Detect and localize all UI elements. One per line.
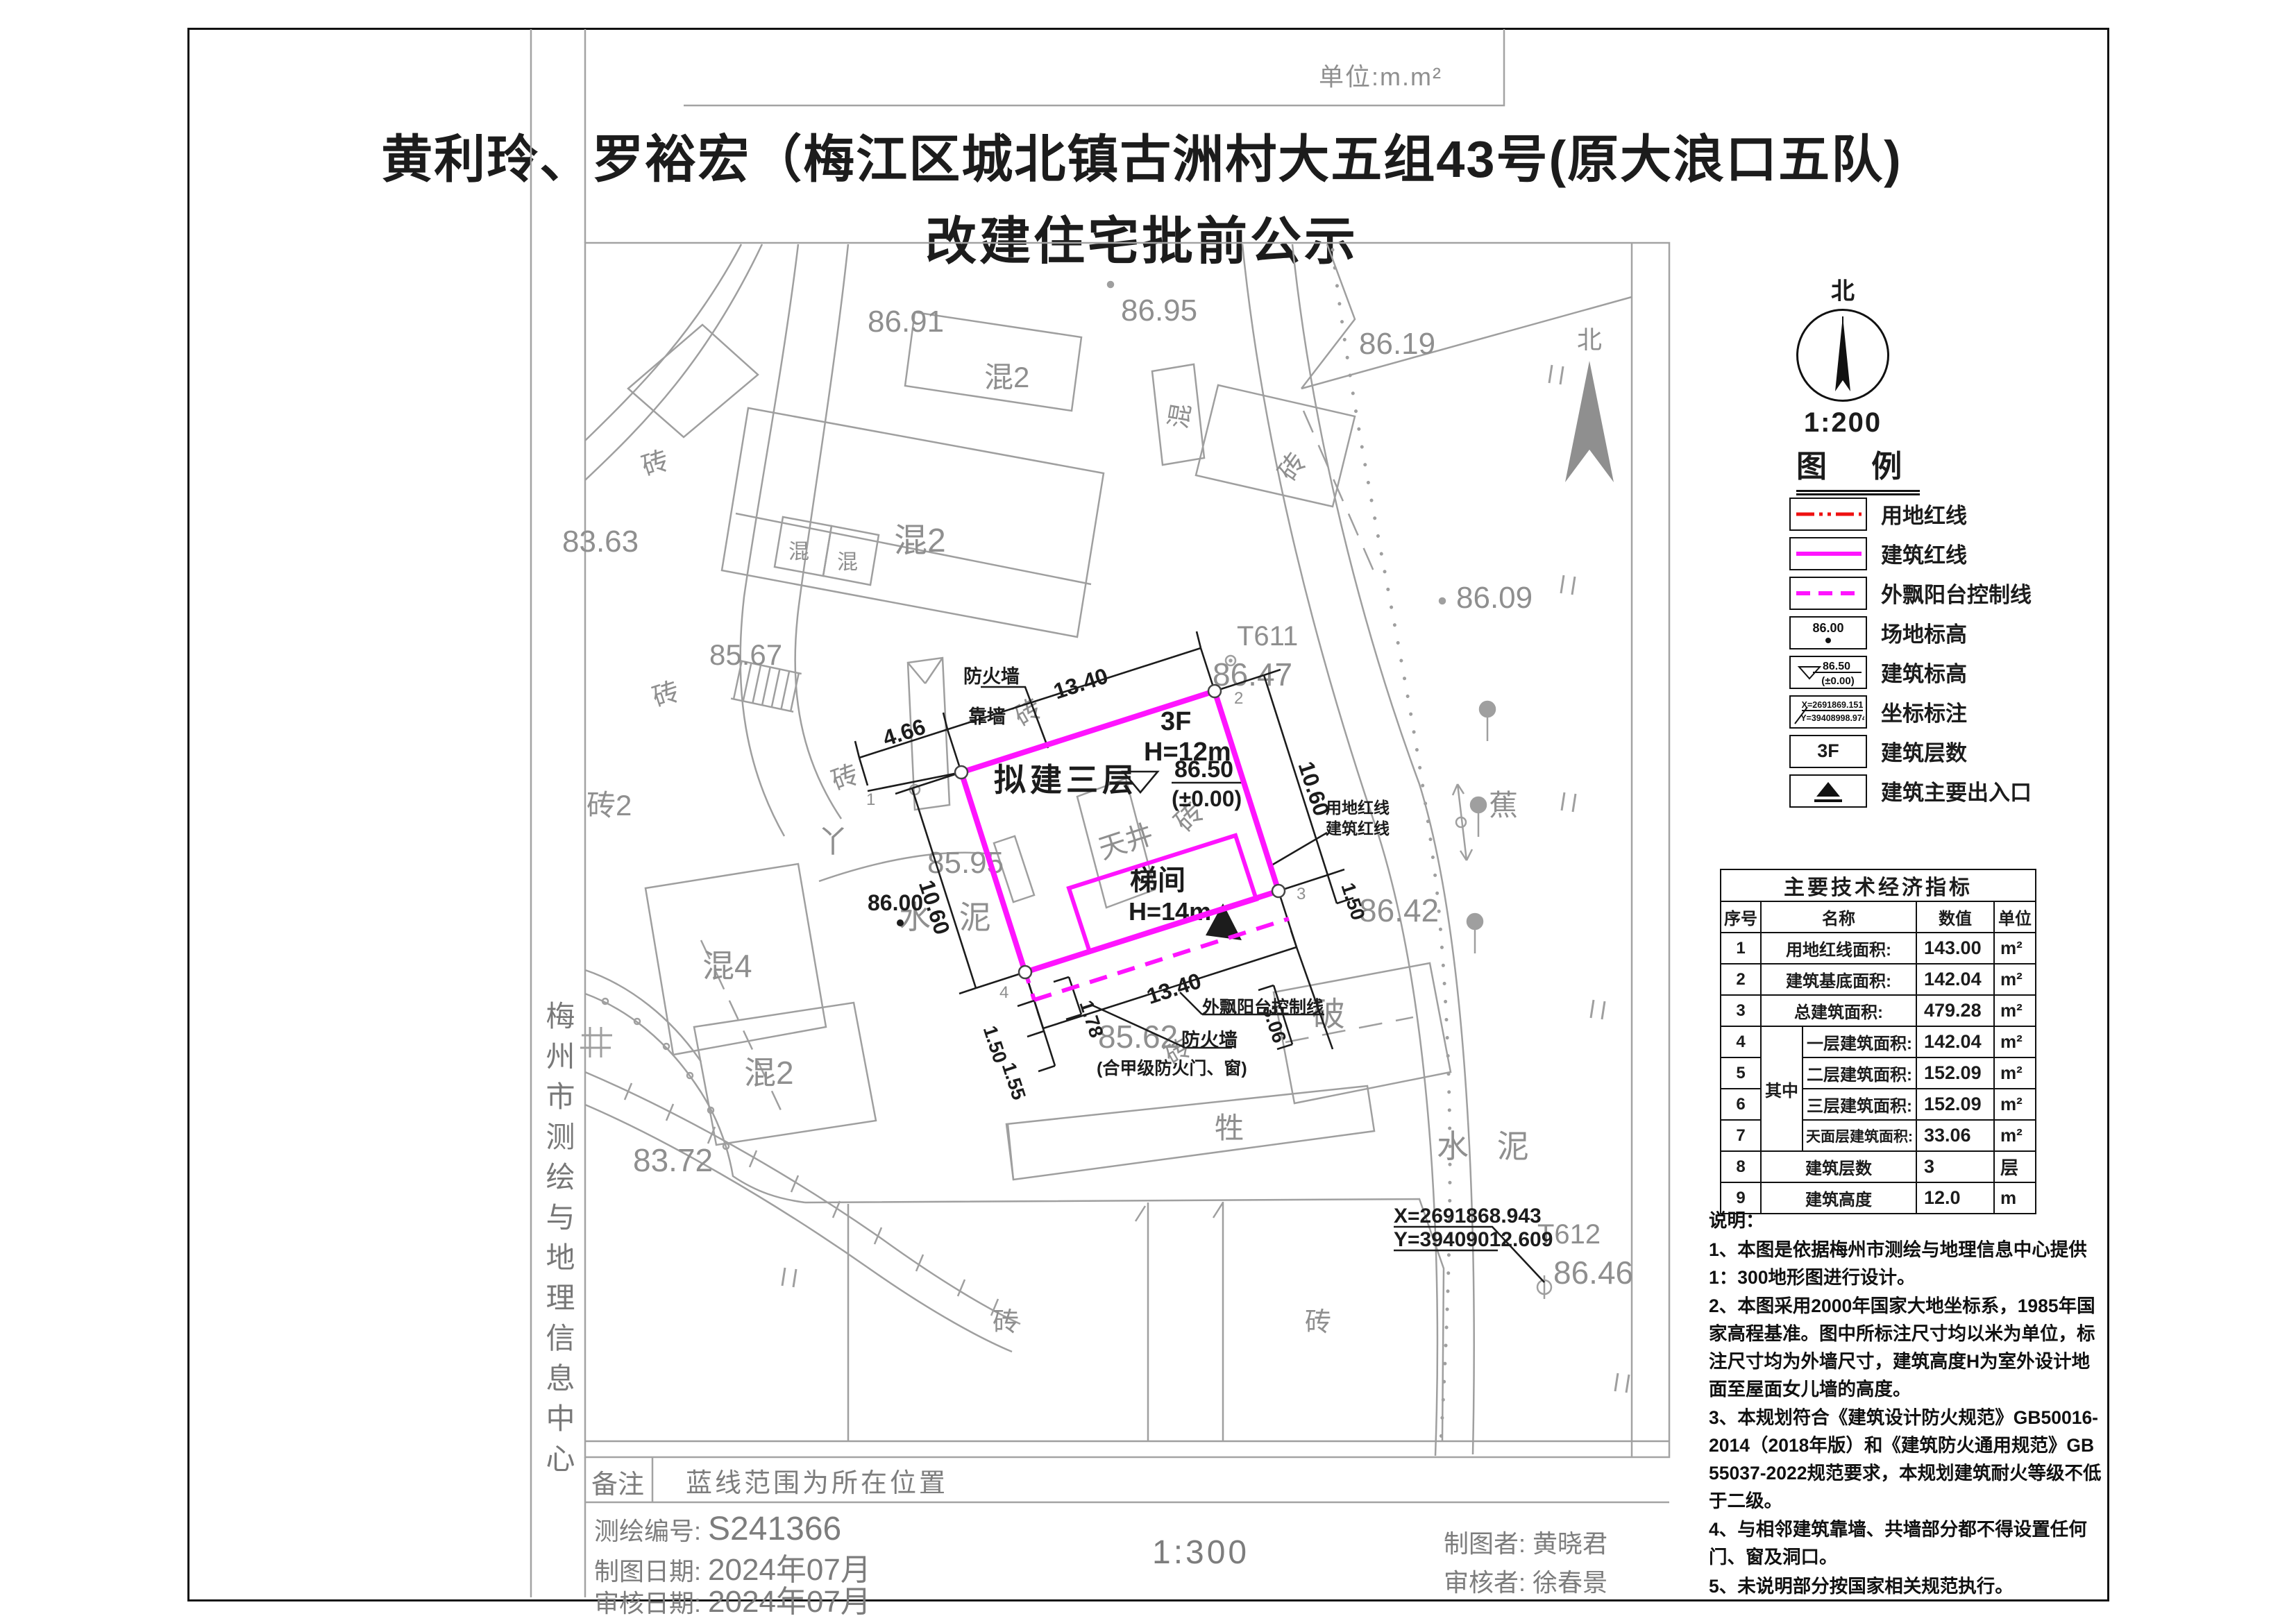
balcony-line-label: 外飘阳台控制线 (1202, 997, 1324, 1017)
drawing-sheet: 黄利玲、罗裕宏（梅江区城北镇古洲村大五组43号(原大浪口五队) 改建住宅批前公示… (0, 0, 2296, 1623)
compass-icon (1796, 309, 1889, 402)
elevation-label: 83.72 (633, 1142, 713, 1178)
vegetation-label: 蕉 (1489, 789, 1518, 822)
surface-label: 水 泥 (1437, 1128, 1539, 1164)
elevation-label: 86.19 (1359, 327, 1435, 361)
floors-icon: 3F (1817, 740, 1839, 762)
legend-label: 建筑红线 (1881, 538, 1967, 569)
review-date-label: 审核日期: (594, 1589, 701, 1617)
building-elevation-icon: 86.50 (±0.00) (1792, 658, 1864, 687)
material-label: 砖 (639, 446, 673, 482)
legend-item-floors: 3F 建筑层数 (1789, 731, 2032, 771)
svg-text:86.50: 86.50 (1823, 661, 1850, 672)
site-elevation-dot (897, 919, 904, 926)
review-date-value: 2024年07月 (708, 1585, 871, 1619)
dimension-label: 1.78 (1075, 998, 1107, 1040)
legend-label: 场地标高 (1881, 617, 1967, 648)
col-header: 名称 (1761, 901, 1916, 933)
coordinate-y: Y=39409012.609 (1394, 1228, 1553, 1251)
proposed-label: 拟建三层 (994, 762, 1138, 798)
note-item: 1、本图是依据梅州市测绘与地理信息中心提供1：300地形图进行设计。 (1709, 1237, 2106, 1292)
col-header: 单位 (1994, 901, 2036, 933)
note-item: 5、未说明部分按国家相关规范执行。 (1709, 1573, 2106, 1601)
elevation-label: 86.09 (1456, 581, 1533, 615)
legend-label: 外飘阳台控制线 (1881, 577, 2032, 609)
tree-symbol-label: 丫 (818, 825, 848, 859)
material-label: 混 (837, 551, 858, 574)
tech-indicators-table: 主要技术经济指标 序号 名称 数值 单位 1用地红线面积: 143.00m² 2… (1720, 869, 2036, 1214)
compass-block: 北 1:200 (1791, 272, 1895, 439)
vertex-number: 2 (1234, 689, 1243, 708)
table-row: 3总建筑面积: 479.28m² (1721, 995, 2036, 1026)
svg-text:Y=39408998.974: Y=39408998.974 (1800, 713, 1864, 723)
drafter-label: 制图者: (1444, 1529, 1526, 1558)
remark-text: 蓝线范围为所在位置 (686, 1461, 948, 1499)
coordinate-icon: X=2691869.151 Y=39408998.974 (1792, 697, 1864, 726)
elevation-label: 86.42 (1359, 892, 1439, 928)
leanwall-label: 靠墙 (968, 706, 1006, 727)
compass-needle-icon (1835, 316, 1850, 391)
legend-item-coordinate: X=2691869.151 Y=39408998.974 坐标标注 (1789, 692, 2032, 731)
floors-label: 3F (1160, 707, 1191, 736)
compass-north-label: 北 (1791, 272, 1895, 306)
group-cell: 其中 (1761, 1026, 1803, 1151)
material-label: 砖 (649, 677, 683, 713)
legend-item-building-elevation: 86.50 (±0.00) 建筑标高 (1789, 652, 2032, 692)
col-header: 序号 (1721, 901, 1761, 933)
building-elevation-zero: (±0.00) (1172, 786, 1242, 811)
svg-text:(±0.00): (±0.00) (1821, 675, 1854, 687)
table-row: 8建筑层数 3层 (1721, 1151, 2036, 1182)
survey-point-label: T611 (1237, 621, 1298, 652)
north-label: 北 (1577, 325, 1602, 354)
reviewer-name: 徐春景 (1533, 1568, 1607, 1597)
elevation-label: 86.46 (1553, 1255, 1633, 1291)
survey-number-label: 测绘编号: (594, 1517, 701, 1545)
legend-item-entrance: 建筑主要出入口 (1789, 771, 2032, 810)
building-elevation-value: 86.50 (1174, 756, 1233, 783)
svg-text:86.00: 86.00 (1812, 621, 1843, 635)
map-scale: 1:300 (1152, 1533, 1249, 1572)
legend-item-building-redline: 建筑红线 (1789, 534, 2032, 573)
tree-icon (1467, 702, 1495, 953)
map-gray-labels: 86.91 86.95 86.19 86.09 83.63 85.67 85.9… (562, 294, 1633, 1337)
map-north-arrow (1565, 361, 1614, 482)
material-label: 混2 (894, 522, 946, 559)
compass-scale: 1:200 (1791, 407, 1895, 439)
drafter-name: 黄晓君 (1533, 1529, 1607, 1558)
firewall-label: 防火墙 (1181, 1030, 1238, 1051)
material-label: 混2 (984, 361, 1029, 393)
note-item: 2、本图采用2000年国家大地坐标系，1985年国家高程基准。图中所标注尺寸均以… (1709, 1293, 2106, 1403)
notes-title: 说明： (1709, 1207, 2106, 1235)
svg-text:X=2691869.151: X=2691869.151 (1802, 700, 1864, 710)
note-item: 3、本规划符合《建筑设计防火规范》GB50016-2014（2018年版）和《建… (1709, 1404, 2106, 1515)
material-label: 砖 (828, 760, 863, 796)
note-item: 4、与相邻建筑靠墙、共墙部分都不得设置任何门、窗及洞口。 (1709, 1516, 2106, 1572)
legend-item-site-redline: 用地红线 (1789, 494, 2032, 534)
legend-label: 用地红线 (1881, 498, 1967, 529)
material-label: 砖 (993, 1308, 1019, 1337)
legend-label: 建筑主要出入口 (1881, 775, 2032, 806)
legend-title: 图 例 (1796, 441, 1920, 495)
elevation-label: 86.95 (1121, 294, 1197, 328)
review-date: 审核日期: 2024年07月 (594, 1577, 871, 1621)
material-label: 混2 (744, 1055, 794, 1091)
col-header: 数值 (1916, 901, 1994, 933)
site-elevation-value: 86.00 (868, 890, 923, 915)
dimension-label: 1.50 (979, 1023, 1011, 1065)
material-label: 混 (1163, 401, 1196, 431)
legend-label: 建筑层数 (1881, 736, 1967, 767)
elevation-label: 83.63 (562, 525, 639, 559)
material-label: 混4 (702, 948, 752, 984)
dimension-label: 1.50 (1337, 880, 1369, 922)
courtyard-label: 天井 (1095, 819, 1158, 865)
firewall-note-label: (合甲级防火门、窗) (1097, 1058, 1247, 1078)
survey-number-value: S241366 (708, 1511, 841, 1547)
table-row: 2建筑基底面积: 142.04m² (1721, 964, 2036, 995)
dimension-lines (855, 631, 1544, 1282)
dimension-label: 1.55 (998, 1060, 1030, 1102)
elevation-label: 86.91 (868, 305, 944, 339)
material-label: 砖2 (586, 789, 632, 822)
height-label: H=14m (1129, 897, 1211, 926)
legend-label: 建筑标高 (1881, 656, 1967, 688)
legend-item-site-elevation: 86.00 场地标高 (1789, 613, 2032, 652)
site-redline-label: 用地红线 (1326, 799, 1390, 817)
remark-label: 备注 (591, 1463, 644, 1501)
material-label: 砖 (1305, 1308, 1331, 1337)
building-redline-label: 建筑红线 (1326, 819, 1390, 838)
dimension-label: 13.40 (1144, 968, 1204, 1009)
dimension-label: 13.40 (1050, 663, 1111, 704)
coordinate-x: X=2691868.943 (1394, 1205, 1542, 1227)
drafter: 制图者: 黄晓君 (1444, 1524, 1607, 1560)
entrance-icon (1793, 779, 1863, 804)
notes-block: 说明： 1、本图是依据梅州市测绘与地理信息中心提供1：300地形图进行设计。 2… (1709, 1207, 2106, 1602)
table-row: 4 其中 一层建筑面积: 142.04m² (1721, 1026, 2036, 1057)
vertex-number: 1 (866, 790, 875, 809)
vertex-number: 4 (999, 983, 1008, 1002)
elevation-label: 85.67 (709, 638, 782, 671)
material-label: 牲 (1215, 1112, 1244, 1144)
table-title: 主要技术经济指标 (1721, 869, 2036, 901)
site-elevation-icon: 86.00 (1793, 619, 1863, 647)
stairwell-label: 梯间 (1130, 865, 1185, 896)
legend-item-balcony-line: 外飘阳台控制线 (1789, 573, 2032, 613)
firewall-label: 防火墙 (963, 666, 1020, 687)
dimension-label: 4.66 (879, 714, 928, 751)
survey-number: 测绘编号: S241366 (594, 1510, 841, 1548)
reviewer: 审核者: 徐春景 (1444, 1563, 1607, 1599)
legend: 用地红线 建筑红线 外飘阳台控制线 86.00 场地标高 86.50 (±0.0… (1789, 494, 2032, 810)
material-label: 混 (788, 541, 809, 563)
reviewer-label: 审核者: (1444, 1568, 1526, 1597)
table-row: 1用地红线面积: 143.00m² (1721, 933, 2036, 964)
vertex-number: 3 (1297, 885, 1306, 903)
legend-label: 坐标标注 (1881, 696, 1967, 727)
